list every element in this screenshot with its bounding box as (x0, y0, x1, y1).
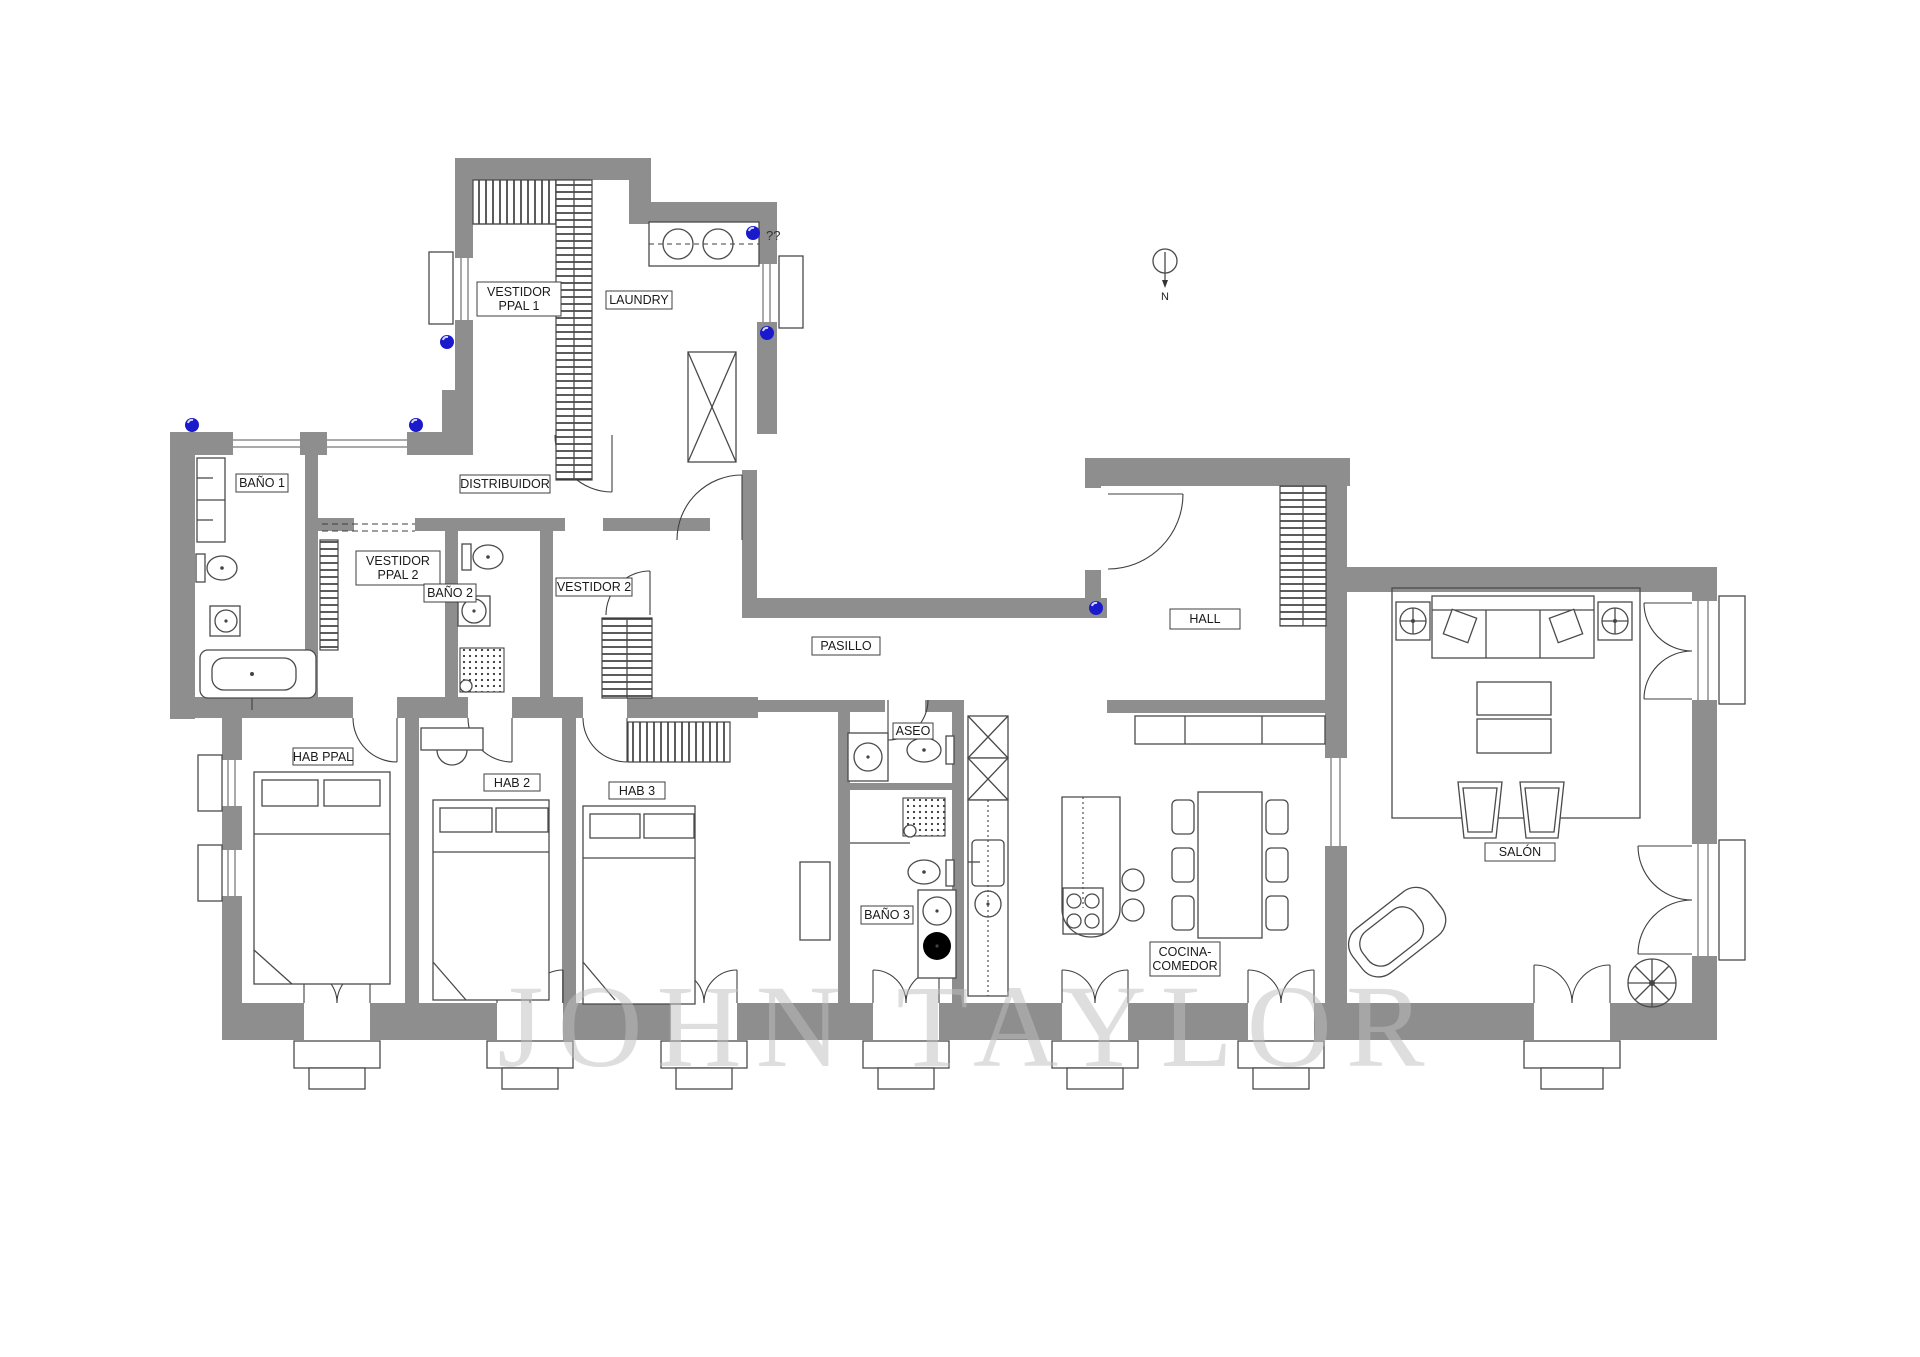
room-label-hab-ppal: HAB PPAL (293, 748, 353, 765)
room-label-hall: HALL (1170, 609, 1240, 629)
laundry-counter (649, 222, 759, 266)
bathroom1-fixtures (196, 458, 316, 710)
coffee-table (1477, 682, 1551, 715)
side-table (1598, 602, 1632, 640)
svg-text:SALÓN: SALÓN (1499, 844, 1541, 859)
svg-text:BAÑO 1: BAÑO 1 (239, 476, 285, 490)
blue-marker (1089, 601, 1103, 615)
kitchen-island (1062, 797, 1144, 937)
dining-set (1172, 792, 1288, 938)
svg-text:HAB PPAL: HAB PPAL (293, 750, 353, 764)
living-room (1341, 588, 1676, 1007)
svg-text:VESTIDOR 2: VESTIDOR 2 (557, 580, 631, 594)
svg-text:ASEO: ASEO (896, 724, 931, 738)
dresser (800, 862, 830, 940)
room-label-vestidor-ppal-2: VESTIDORPPAL 2 (356, 551, 440, 585)
bed-hab-ppal (254, 772, 390, 984)
room-label-hab-2: HAB 2 (484, 774, 540, 791)
kitchen-column (968, 716, 1008, 996)
blue-marker (746, 226, 760, 240)
door (583, 718, 627, 762)
svg-text:PASILLO: PASILLO (820, 639, 871, 653)
chair (1172, 800, 1194, 834)
french-door (1644, 603, 1692, 699)
stool (1122, 869, 1144, 891)
blue-marker (760, 326, 774, 340)
svg-text:DISTRIBUIDOR: DISTRIBUIDOR (460, 477, 550, 491)
french-door (1638, 846, 1692, 954)
blue-marker (409, 418, 423, 432)
svg-text:HAB 2: HAB 2 (494, 776, 530, 790)
room-label-vestidor-2: VESTIDOR 2 (556, 578, 632, 596)
room-label-vestidor-ppal-1: VESTIDORPPAL 1 (477, 282, 561, 316)
toilet (946, 860, 954, 886)
coffee-table (1477, 719, 1551, 753)
bathroom2-fixtures (458, 544, 504, 692)
closet-hatch (320, 540, 338, 650)
room-label-aseo: ASEO (893, 723, 933, 739)
plant (1628, 959, 1676, 1007)
desk (421, 728, 483, 765)
floor-plan-svg: VESTIDORPPAL 1 LAUNDRY BAÑO 1 VESTIDORPP… (0, 0, 1920, 1357)
floor-plan-image: VESTIDORPPAL 1 LAUNDRY BAÑO 1 VESTIDORPP… (0, 0, 1920, 1357)
bathtub (200, 650, 316, 698)
room-label-salon: SALÓN (1485, 843, 1555, 861)
kitchen-counter (1135, 716, 1325, 744)
room-label-bano-2: BAÑO 2 (424, 584, 476, 602)
toilet (946, 736, 954, 764)
toilet (462, 544, 471, 570)
unknown-marker-text: ?? (766, 228, 780, 243)
chair (1266, 800, 1288, 834)
wardrobe-hatch (628, 722, 730, 762)
svg-text:HAB 3: HAB 3 (619, 784, 655, 798)
bathroom3-fixtures (850, 798, 956, 978)
svg-text:BAÑO 2: BAÑO 2 (427, 586, 473, 600)
watermark-text: JOHN TAYLOR (497, 961, 1438, 1092)
blue-marker (185, 418, 199, 432)
armchair (1458, 782, 1502, 838)
chair (1172, 848, 1194, 882)
svg-text:BAÑO 3: BAÑO 3 (864, 908, 910, 922)
chair (1172, 896, 1194, 930)
room-label-laundry: LAUNDRY (606, 291, 672, 309)
entrance-door (1108, 494, 1183, 569)
room-label-hab-3: HAB 3 (609, 782, 665, 799)
aseo-fixtures (848, 733, 954, 781)
room-label-distribuidor: DISTRIBUIDOR (460, 475, 550, 493)
svg-text:HALL: HALL (1189, 612, 1220, 626)
french-door (1534, 965, 1610, 1003)
stool (1122, 899, 1144, 921)
compass-north-label: N (1161, 291, 1169, 303)
side-table (1396, 602, 1430, 640)
shaft (688, 352, 736, 462)
chair (1266, 896, 1288, 930)
north-compass: N (1153, 249, 1177, 303)
dining-table (1198, 792, 1262, 938)
blue-marker (440, 335, 454, 349)
svg-text:LAUNDRY: LAUNDRY (609, 293, 669, 307)
room-label-bano-3: BAÑO 3 (861, 906, 913, 924)
chair (1266, 848, 1288, 882)
armchair (1520, 782, 1564, 838)
room-label-bano-1: BAÑO 1 (236, 474, 288, 492)
room-label-pasillo: PASILLO (812, 637, 880, 655)
door (353, 718, 397, 762)
toilet (196, 554, 205, 582)
